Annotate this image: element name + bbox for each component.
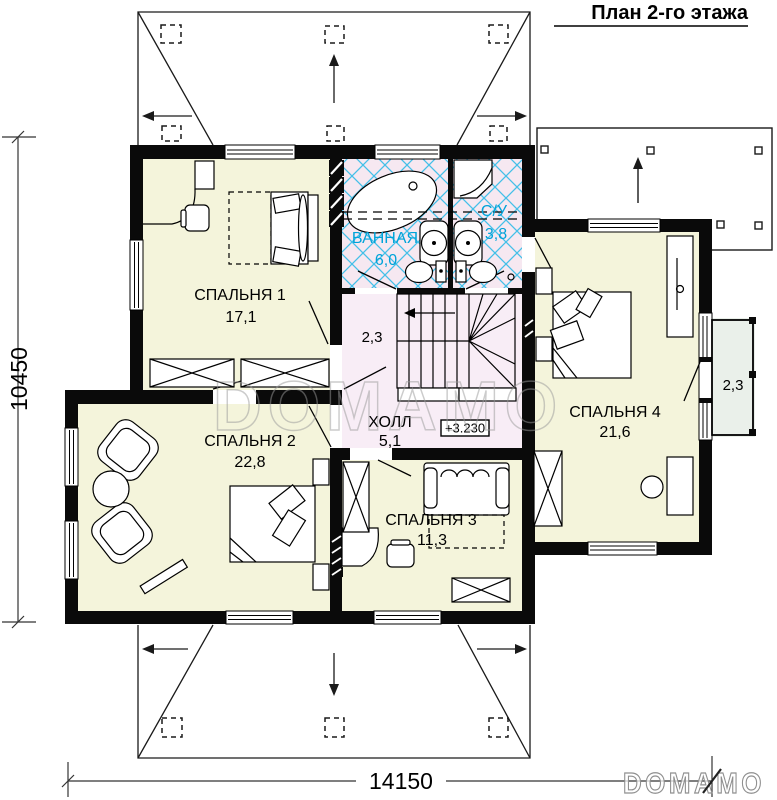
window-bottom-bedroom2 <box>226 611 293 624</box>
label-bedroom3-area: 11,3 <box>417 532 447 549</box>
bed-headboard <box>308 195 318 261</box>
watermark-center: DOMAMO <box>213 367 563 445</box>
wardrobe-icon <box>667 236 693 337</box>
chair-icon <box>185 205 209 231</box>
label-bedroom4-name: СПАЛЬНЯ 4 <box>569 404 661 421</box>
floor-plan-page: 10450 14150 <box>0 0 777 800</box>
desk-icon <box>195 161 214 189</box>
floor-plan-canvas: 10450 14150 <box>0 0 777 800</box>
nightstand-icon <box>313 564 329 590</box>
roof-top-plan <box>138 12 530 145</box>
label-wc-name: С/У <box>481 203 508 220</box>
dimension-horizontal: 14150 <box>62 756 712 797</box>
window-bottom-bedroom4 <box>588 542 657 555</box>
window-left-bedroom2-a <box>65 428 78 486</box>
roof-slope-arrows <box>142 54 527 121</box>
window-top-bathroom <box>375 145 440 159</box>
sofa-icon <box>424 463 509 515</box>
window-left-bedroom2-b <box>65 521 78 579</box>
balcony-door-window <box>699 313 712 440</box>
label-balcony-area: 2,3 <box>723 377 744 394</box>
roof-vent-squares-bottom <box>162 718 508 737</box>
dimension-height-label: 10450 <box>6 347 32 411</box>
blanket-roll <box>299 195 308 261</box>
chair-back-icon <box>181 210 186 227</box>
label-bedroom2-area: 22,8 <box>234 454 265 471</box>
label-bedroom1-name: СПАЛЬНЯ 1 <box>194 287 286 304</box>
nightstand-icon <box>536 337 552 361</box>
roof-bottom-plan <box>138 625 530 758</box>
window-top-bedroom4 <box>588 219 660 232</box>
dimension-vertical: 10450 <box>2 131 36 628</box>
sink-icon <box>420 221 448 265</box>
wardrobe-icon <box>452 578 510 602</box>
page-title: План 2-го этажа <box>591 2 749 24</box>
chair-back-icon <box>391 540 410 545</box>
sink-icon <box>454 221 482 265</box>
label-bathroom-area: 6,0 <box>375 252 397 269</box>
label-wc-area: 3,8 <box>485 226 507 243</box>
wardrobe-icon <box>534 451 562 526</box>
label-landing-area: 2,3 <box>362 329 383 346</box>
nightstand-icon <box>536 268 552 294</box>
window-top-bedroom1 <box>225 145 295 159</box>
nightstand-icon <box>313 459 329 485</box>
watermark-corner: DOMAMO <box>623 768 765 800</box>
label-bedroom3-name: СПАЛЬНЯ 3 <box>385 512 477 529</box>
drawing-title: План 2-го этажа <box>554 2 749 26</box>
roof-slope-arrows-bottom <box>142 644 527 696</box>
dresser-icon <box>667 457 693 515</box>
window-bottom-bedroom3 <box>374 611 441 624</box>
toilet-icon <box>406 261 447 283</box>
label-bathroom-name: ВАННАЯ <box>352 230 418 247</box>
window-left-bedroom1 <box>130 240 143 310</box>
table-icon <box>93 471 129 507</box>
dimension-width-label: 14150 <box>369 768 433 794</box>
chair-icon <box>387 544 414 567</box>
table-icon <box>641 476 663 498</box>
label-bedroom4-area: 21,6 <box>599 424 630 441</box>
label-bedroom1-area: 17,1 <box>225 309 256 326</box>
canopy-posts <box>541 146 762 229</box>
toilet-icon <box>456 261 497 283</box>
wardrobe-icon <box>343 462 369 532</box>
